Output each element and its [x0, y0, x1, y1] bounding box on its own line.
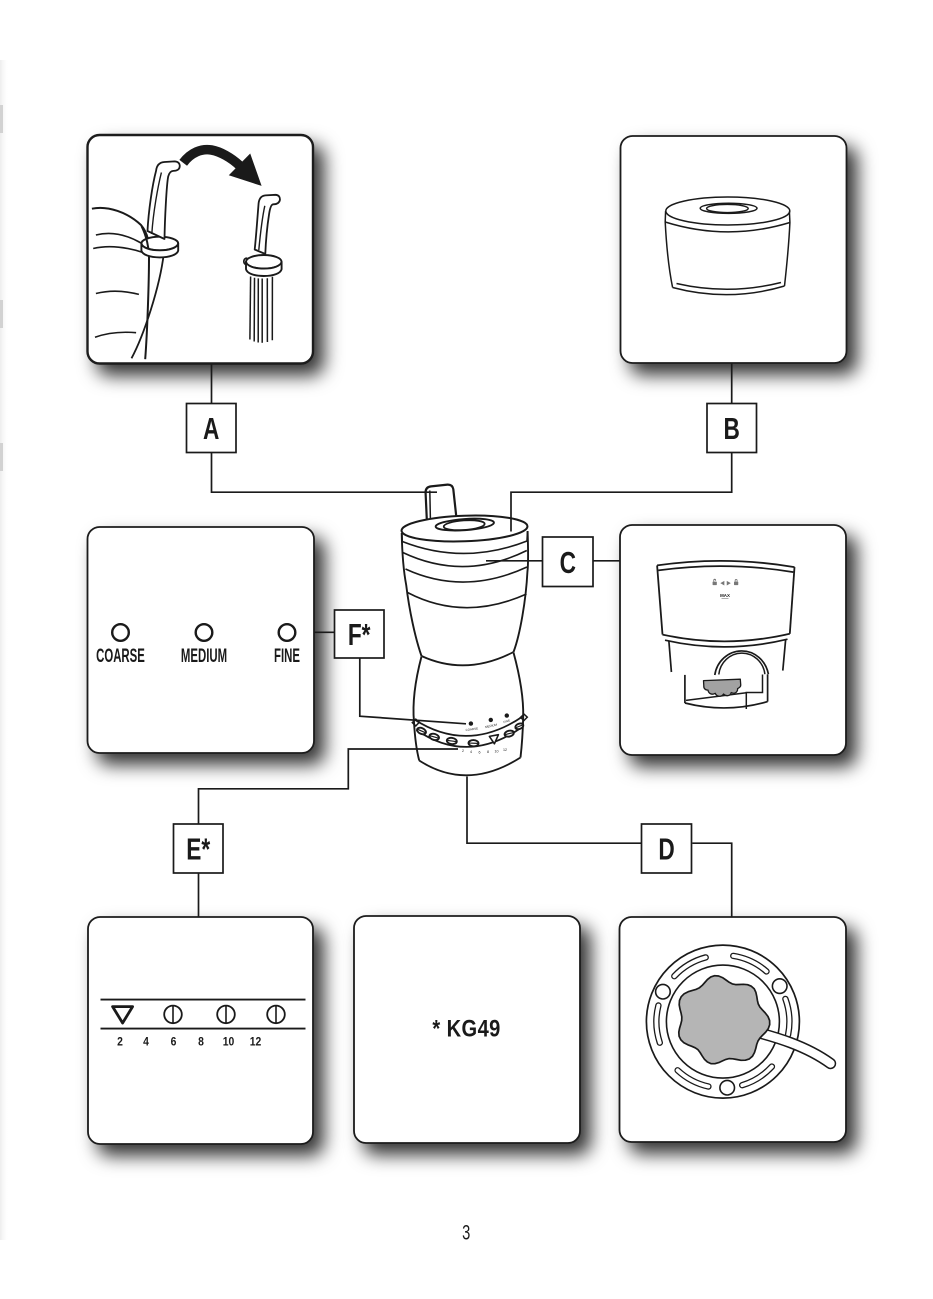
svg-text:3: 3: [462, 1221, 470, 1244]
svg-text:E*: E*: [186, 832, 210, 866]
svg-text:* KG49: * KG49: [432, 1015, 500, 1042]
svg-text:A: A: [203, 412, 219, 446]
svg-text:8: 8: [198, 1036, 204, 1049]
svg-text:10: 10: [223, 1036, 235, 1049]
svg-text:COARSE: COARSE: [96, 646, 145, 667]
svg-text:C: C: [560, 546, 576, 580]
svg-text:8: 8: [487, 750, 489, 754]
svg-text:D: D: [658, 832, 674, 866]
svg-text:2: 2: [462, 749, 464, 753]
svg-text:10: 10: [495, 749, 499, 753]
svg-text:12: 12: [503, 748, 507, 752]
svg-text:2: 2: [117, 1036, 123, 1049]
svg-text:MEDIUM: MEDIUM: [181, 646, 227, 667]
svg-text:4: 4: [143, 1036, 149, 1049]
svg-text:6: 6: [479, 750, 481, 754]
svg-text:MAX: MAX: [720, 593, 730, 598]
svg-text:4: 4: [470, 750, 472, 754]
svg-text:F*: F*: [348, 618, 371, 652]
svg-text:6: 6: [171, 1036, 177, 1049]
svg-text:12: 12: [250, 1036, 262, 1049]
svg-text:B: B: [724, 412, 740, 446]
svg-text:FINE: FINE: [274, 646, 300, 667]
